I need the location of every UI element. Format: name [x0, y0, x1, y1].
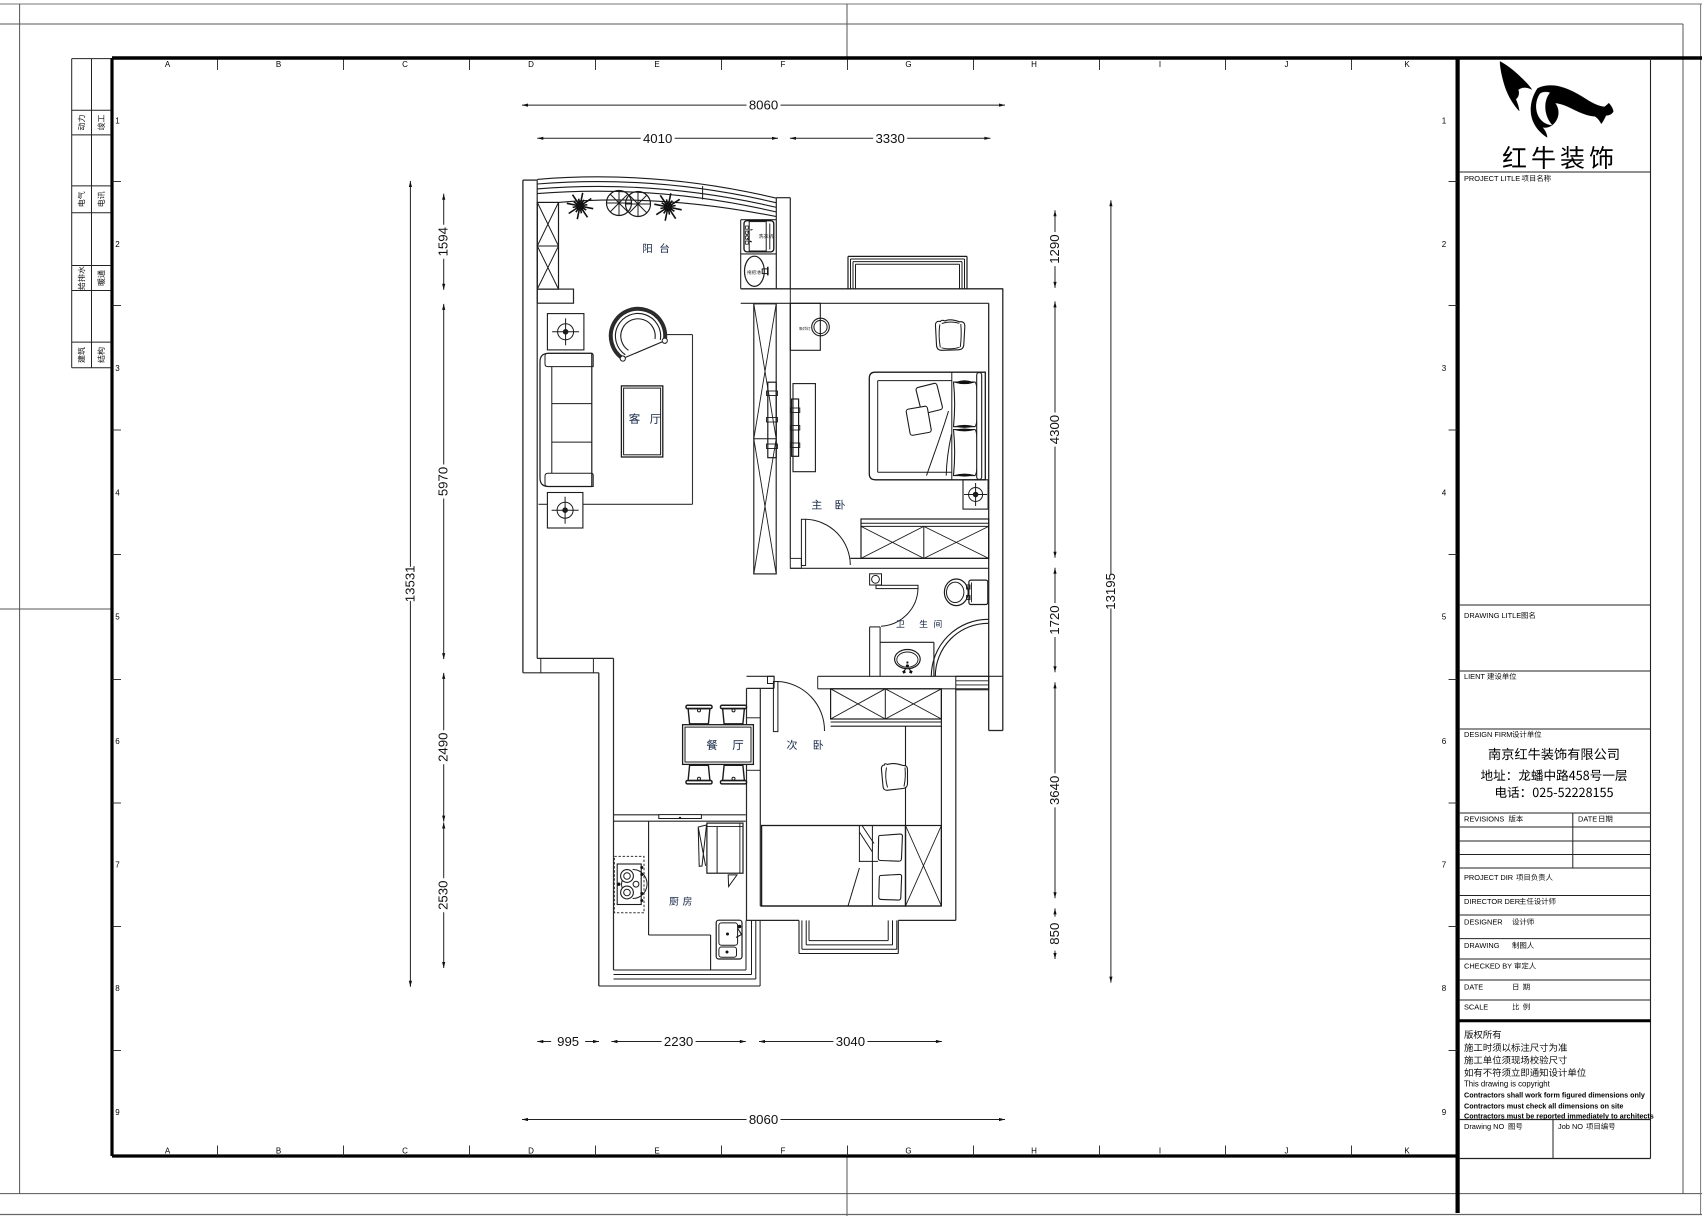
svg-text:G: G [905, 1147, 911, 1156]
svg-text:8060: 8060 [749, 98, 778, 113]
svg-text:I: I [1159, 1147, 1161, 1156]
svg-text:5970: 5970 [436, 467, 451, 496]
svg-text:J: J [1285, 60, 1289, 69]
svg-text:G: G [905, 60, 911, 69]
svg-text:A: A [165, 60, 171, 69]
svg-text:995: 995 [557, 1034, 579, 1049]
svg-text:H: H [1031, 1147, 1037, 1156]
svg-text:2530: 2530 [436, 881, 451, 910]
svg-text:13531: 13531 [402, 566, 417, 603]
svg-text:DESIGN FIRM: DESIGN FIRM [1464, 730, 1512, 739]
svg-text:4010: 4010 [643, 131, 672, 146]
svg-text:8: 8 [1442, 984, 1447, 993]
svg-text:D: D [528, 60, 534, 69]
svg-text:E: E [654, 1147, 659, 1156]
svg-text:Contractors shall work form fi: Contractors shall work form figured dime… [1464, 1091, 1645, 1100]
svg-text:1290: 1290 [1047, 234, 1062, 263]
svg-text:Job NO: Job NO [1558, 1122, 1583, 1131]
svg-text:DESIGNER: DESIGNER [1464, 918, 1503, 927]
svg-text:F: F [781, 60, 786, 69]
svg-text:2230: 2230 [664, 1034, 693, 1049]
svg-text:DRAWING: DRAWING [1464, 941, 1500, 950]
svg-text:3330: 3330 [875, 131, 904, 146]
svg-text:LIENT: LIENT [1464, 672, 1485, 681]
svg-text:CHECKED BY: CHECKED BY [1464, 962, 1512, 971]
svg-text:4: 4 [1442, 488, 1447, 497]
svg-text:8: 8 [115, 984, 120, 993]
svg-text:8060: 8060 [749, 1112, 778, 1127]
svg-text:5: 5 [115, 613, 120, 622]
svg-text:PROJECT LITLE: PROJECT LITLE [1464, 174, 1520, 183]
svg-text:K: K [1404, 60, 1410, 69]
svg-text:7: 7 [1442, 861, 1447, 870]
svg-text:1: 1 [1442, 117, 1447, 126]
svg-text:SCALE: SCALE [1464, 1003, 1488, 1012]
svg-text:1594: 1594 [436, 227, 451, 256]
svg-text:Contractors must check all dim: Contractors must check all dimensions on… [1464, 1102, 1623, 1111]
svg-text:PROJECT DIR: PROJECT DIR [1464, 873, 1513, 882]
svg-text:4: 4 [115, 488, 120, 497]
svg-text:J: J [1285, 1147, 1289, 1156]
svg-text:DIRECTOR DER: DIRECTOR DER [1464, 897, 1520, 906]
svg-text:This drawing is copyright: This drawing is copyright [1464, 1080, 1551, 1089]
svg-text:2490: 2490 [436, 733, 451, 762]
svg-text:A: A [165, 1147, 171, 1156]
svg-text:D: D [528, 1147, 534, 1156]
svg-text:4300: 4300 [1047, 415, 1062, 444]
svg-text:9: 9 [1442, 1108, 1447, 1117]
svg-text:B: B [276, 1147, 281, 1156]
svg-text:1: 1 [115, 117, 120, 126]
svg-text:5: 5 [1442, 613, 1447, 622]
svg-text:C: C [402, 1147, 408, 1156]
svg-text:REVISIONS: REVISIONS [1464, 815, 1504, 824]
svg-text:2: 2 [115, 240, 120, 249]
svg-text:I: I [1159, 60, 1161, 69]
svg-text:E: E [654, 60, 659, 69]
svg-text:K: K [1404, 1147, 1410, 1156]
svg-text:3: 3 [1442, 364, 1447, 373]
svg-text:3640: 3640 [1047, 776, 1062, 805]
svg-text:F: F [781, 1147, 786, 1156]
svg-text:DATE: DATE [1578, 815, 1597, 824]
svg-text:3: 3 [115, 364, 120, 373]
svg-text:Contractors must be reported i: Contractors must be reported immediately… [1464, 1112, 1654, 1121]
svg-text:2: 2 [1442, 240, 1447, 249]
svg-text:6: 6 [115, 737, 120, 746]
svg-text:6: 6 [1442, 737, 1447, 746]
svg-text:850: 850 [1047, 923, 1062, 945]
svg-text:13195: 13195 [1103, 573, 1118, 610]
svg-text:Drawing NO: Drawing NO [1464, 1122, 1504, 1131]
svg-text:7: 7 [115, 861, 120, 870]
svg-text:DRAWING LITLE: DRAWING LITLE [1464, 611, 1521, 620]
svg-text:1720: 1720 [1047, 605, 1062, 634]
svg-text:C: C [402, 60, 408, 69]
svg-text:9: 9 [115, 1108, 120, 1117]
svg-text:H: H [1031, 60, 1037, 69]
svg-text:B: B [276, 60, 281, 69]
svg-text:3040: 3040 [836, 1034, 865, 1049]
svg-text:DATE: DATE [1464, 983, 1483, 992]
